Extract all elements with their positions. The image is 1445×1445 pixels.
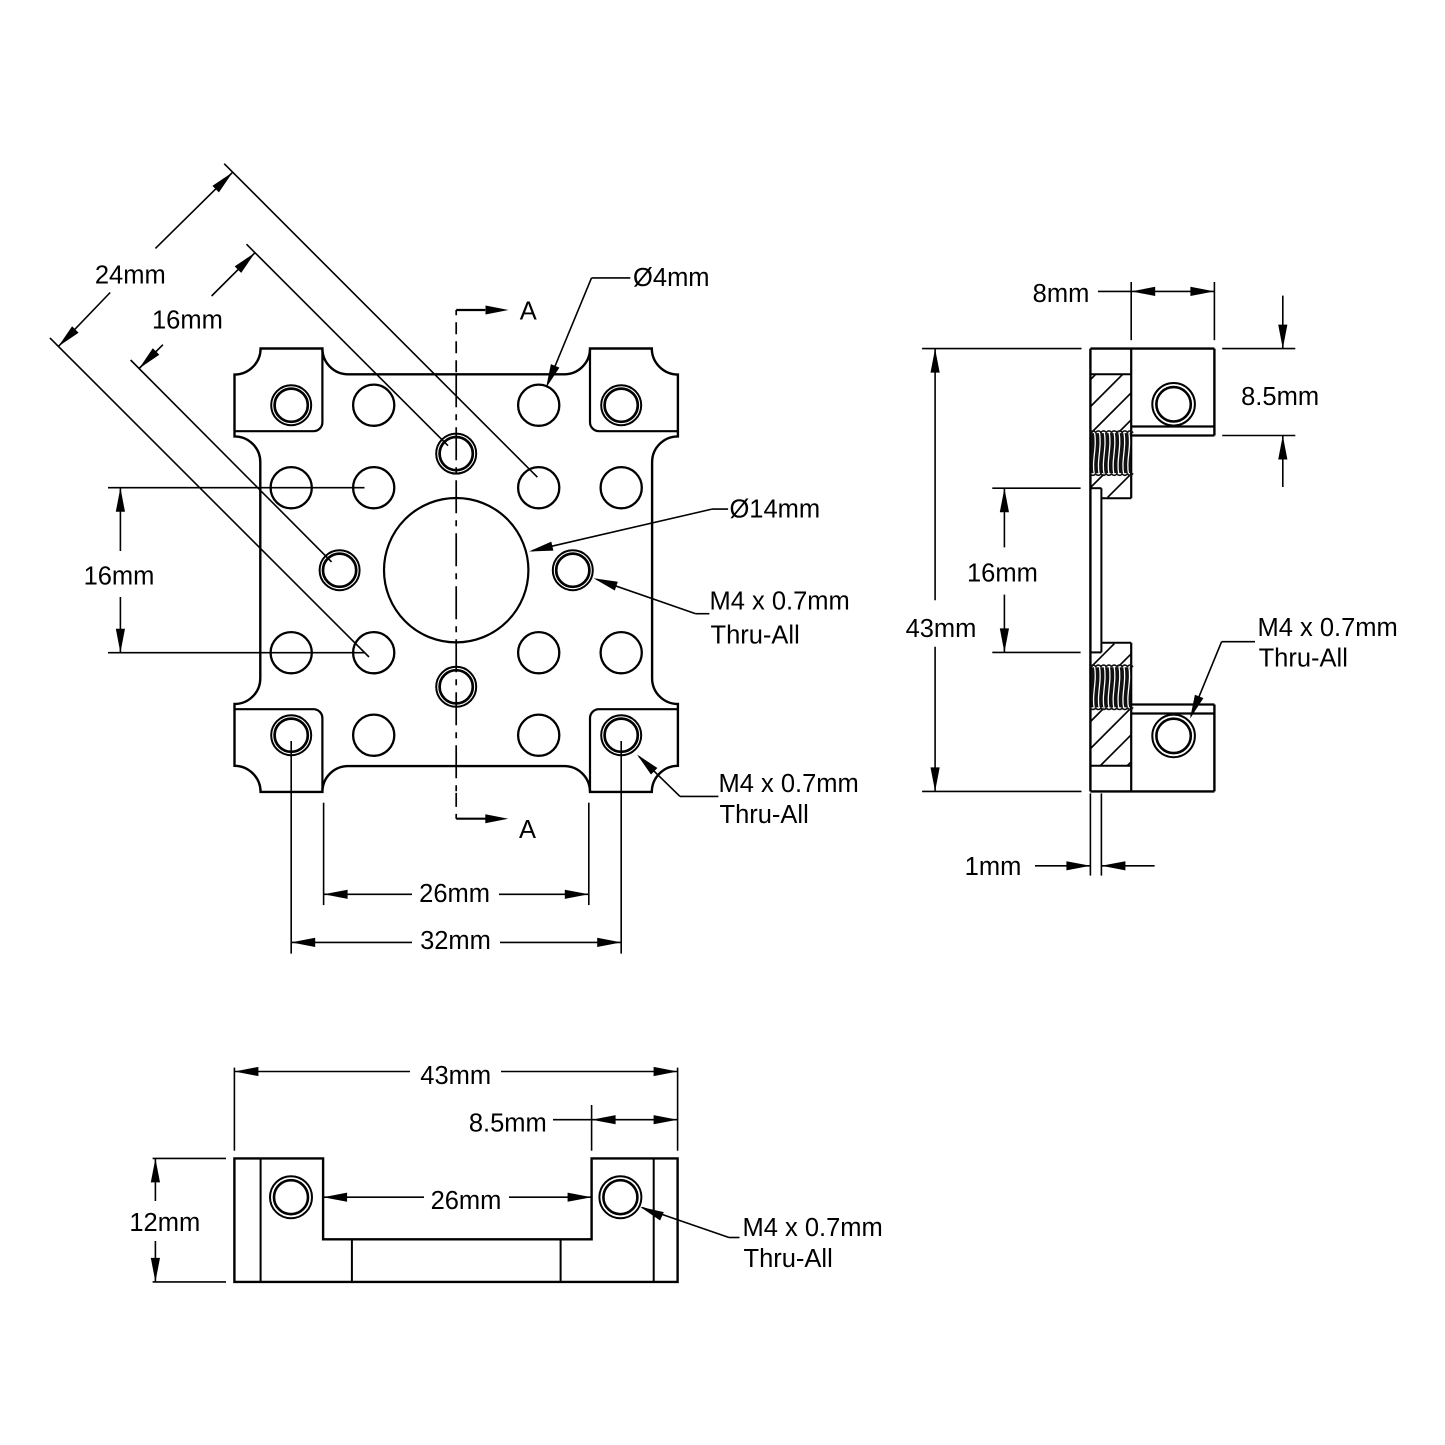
svg-text:Ø4mm: Ø4mm bbox=[633, 264, 710, 292]
svg-text:8mm: 8mm bbox=[1033, 280, 1090, 308]
svg-text:24mm: 24mm bbox=[95, 262, 166, 290]
svg-text:M4 x 0.7mm: M4 x 0.7mm bbox=[710, 588, 850, 616]
svg-text:43mm: 43mm bbox=[906, 615, 977, 643]
svg-text:43mm: 43mm bbox=[420, 1062, 491, 1090]
svg-text:16mm: 16mm bbox=[152, 307, 223, 335]
svg-text:Thru-All: Thru-All bbox=[711, 621, 800, 649]
svg-text:8.5mm: 8.5mm bbox=[469, 1109, 547, 1137]
svg-text:Thru-All: Thru-All bbox=[720, 801, 809, 829]
svg-text:16mm: 16mm bbox=[84, 563, 155, 591]
svg-text:Ø14mm: Ø14mm bbox=[729, 496, 820, 524]
svg-text:M4 x 0.7mm: M4 x 0.7mm bbox=[1258, 614, 1398, 642]
svg-text:M4 x 0.7mm: M4 x 0.7mm bbox=[719, 770, 859, 798]
svg-text:A: A bbox=[520, 298, 537, 326]
svg-text:M4 x 0.7mm: M4 x 0.7mm bbox=[743, 1214, 883, 1242]
svg-text:1mm: 1mm bbox=[965, 853, 1022, 881]
svg-text:26mm: 26mm bbox=[431, 1187, 502, 1215]
svg-text:8.5mm: 8.5mm bbox=[1241, 383, 1319, 411]
svg-text:32mm: 32mm bbox=[420, 927, 491, 955]
svg-text:16mm: 16mm bbox=[967, 560, 1038, 588]
svg-text:12mm: 12mm bbox=[129, 1209, 200, 1237]
svg-text:Thru-All: Thru-All bbox=[1259, 644, 1348, 672]
svg-text:Thru-All: Thru-All bbox=[744, 1245, 833, 1273]
svg-text:A: A bbox=[519, 816, 536, 844]
svg-text:26mm: 26mm bbox=[419, 880, 490, 908]
